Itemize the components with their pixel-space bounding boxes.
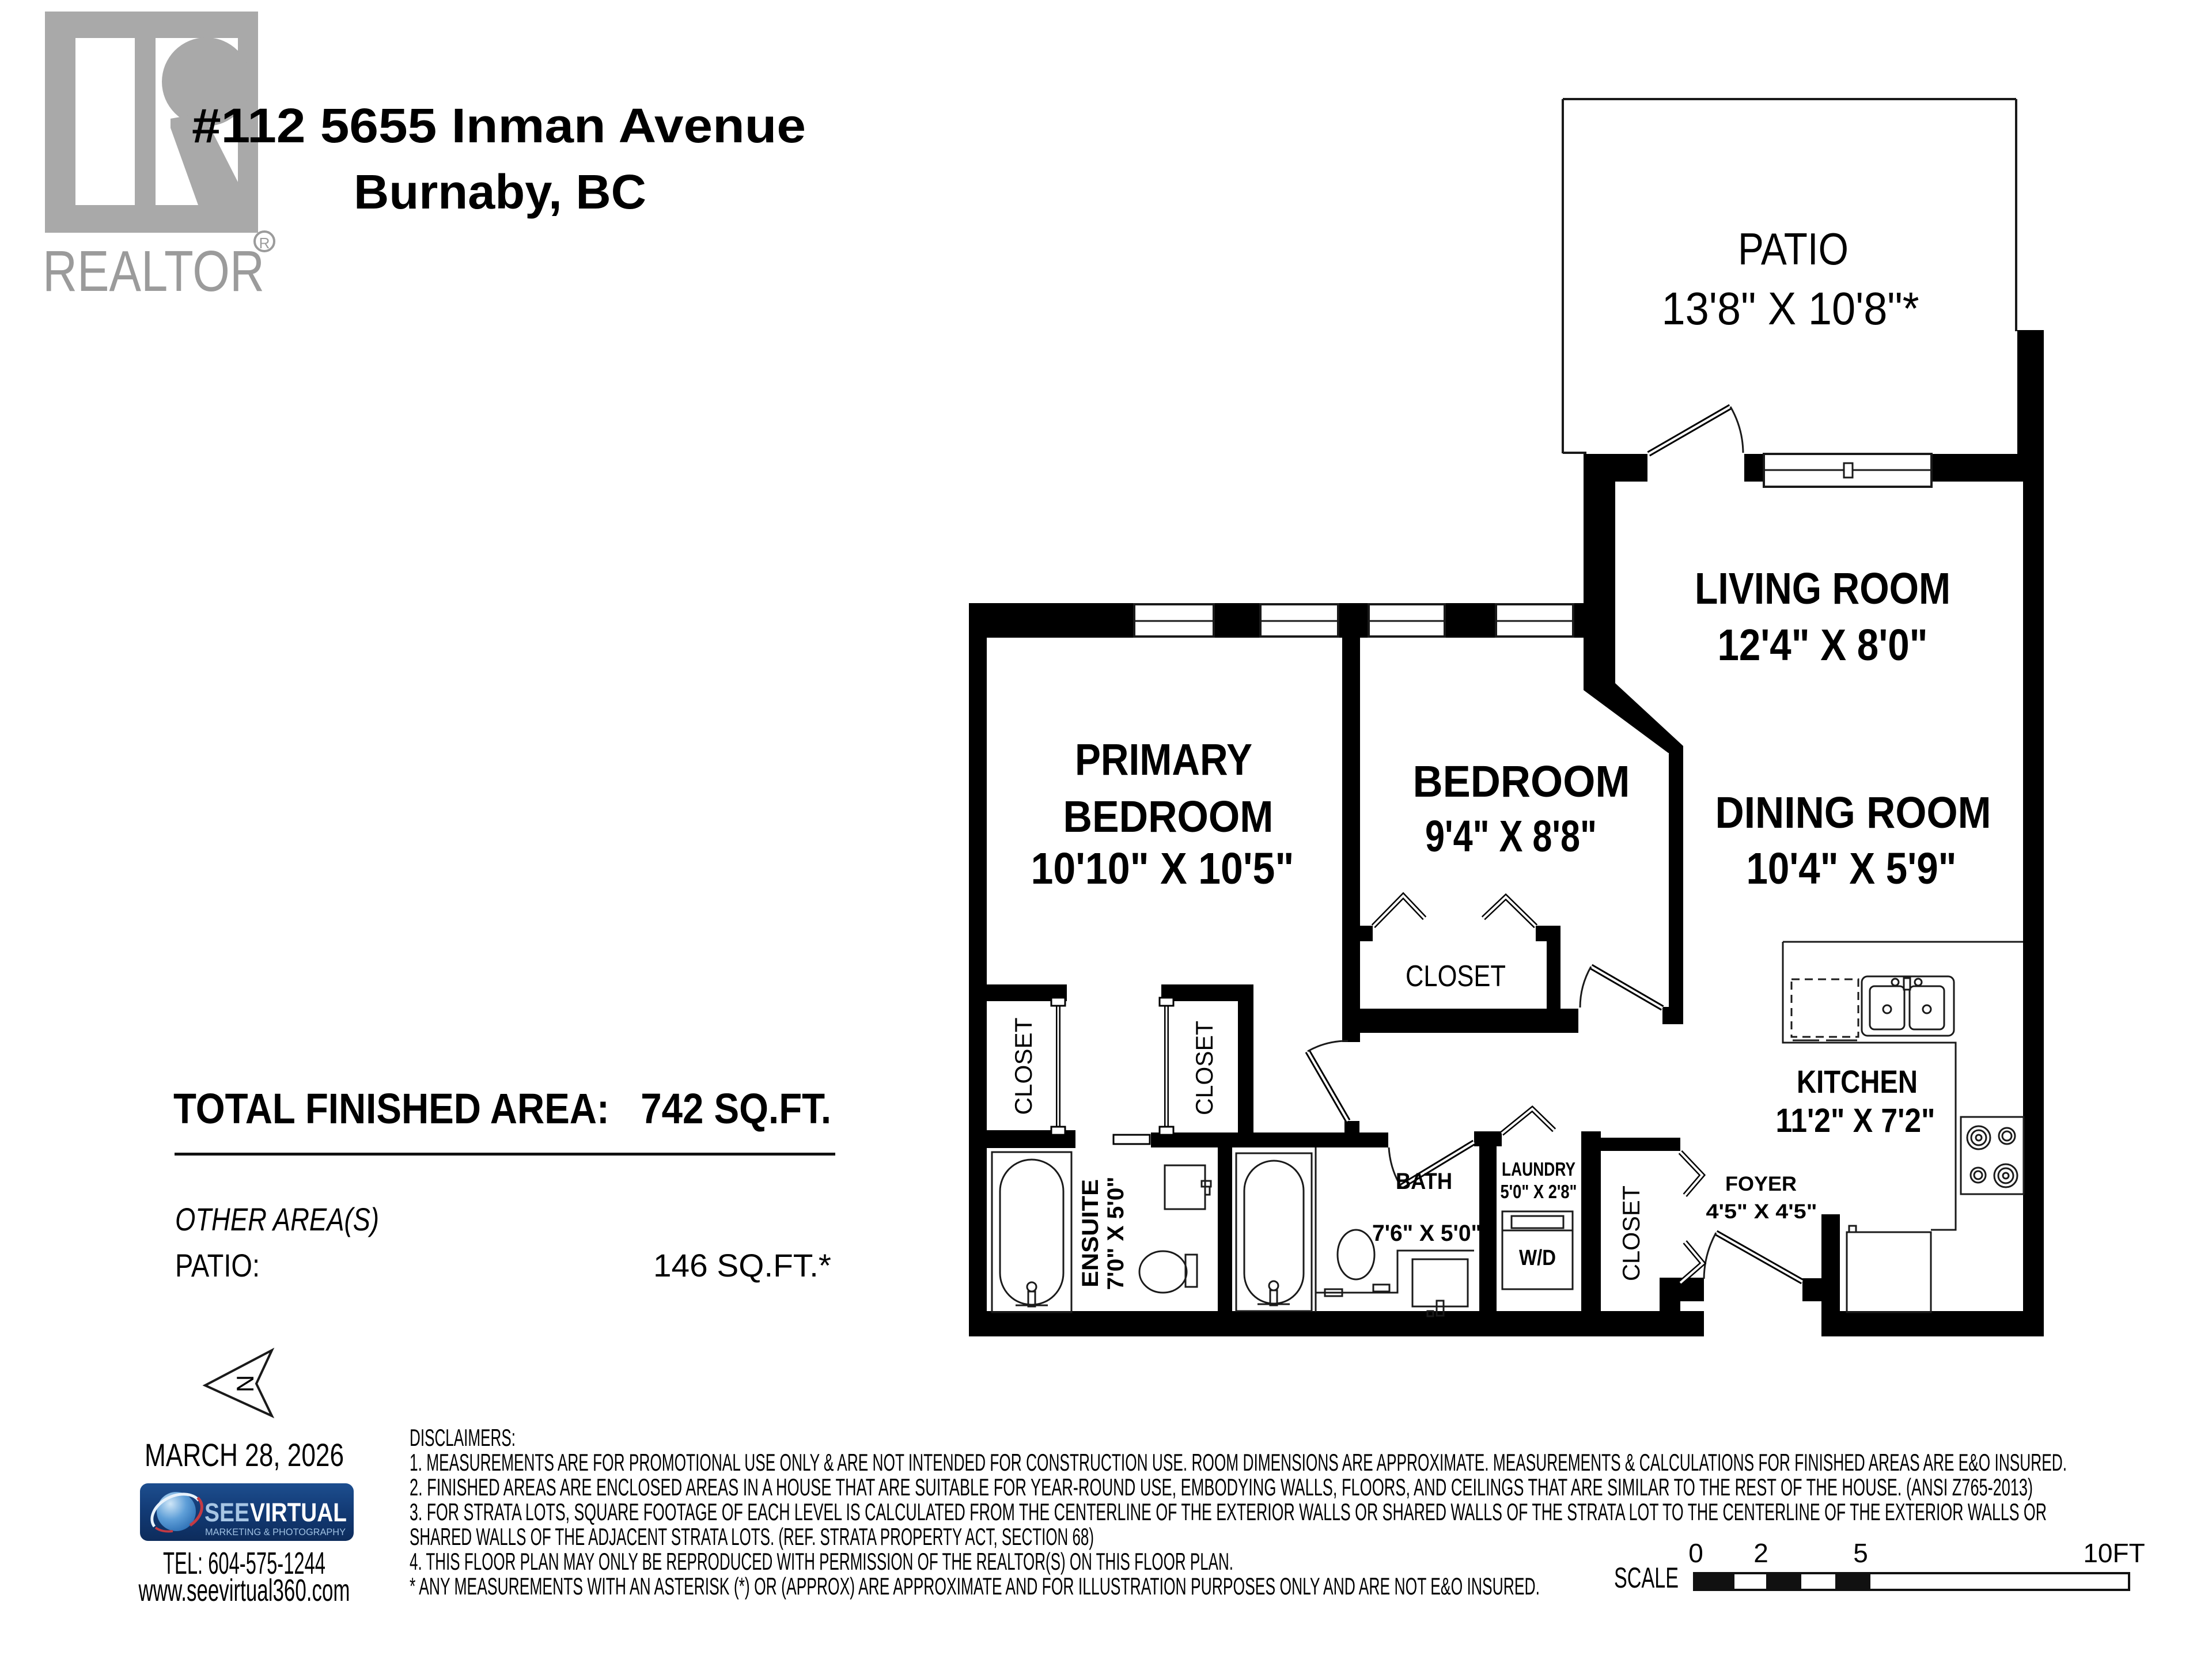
- svg-text:#112 5655 Inman Avenue: #112 5655 Inman Avenue: [192, 99, 806, 153]
- svg-text:11'2" X 7'2": 11'2" X 7'2": [1776, 1102, 1935, 1139]
- svg-text:Burnaby, BC: Burnaby, BC: [354, 165, 646, 219]
- svg-text:BEDROOM: BEDROOM: [1413, 757, 1630, 806]
- svg-text:SCALE: SCALE: [1614, 1562, 1679, 1594]
- svg-text:1. MEASUREMENTS ARE FOR PROMOT: 1. MEASUREMENTS ARE FOR PROMOTIONAL USE …: [410, 1449, 2067, 1476]
- svg-text:2. FINISHED AREAS ARE ENCLOSED: 2. FINISHED AREAS ARE ENCLOSED AREAS IN …: [410, 1474, 2033, 1501]
- svg-text:FOYER: FOYER: [1725, 1173, 1797, 1195]
- svg-text:ENSUITE: ENSUITE: [1078, 1179, 1103, 1287]
- svg-text:OTHER AREA(S): OTHER AREA(S): [175, 1201, 379, 1237]
- svg-text:5: 5: [1853, 1538, 1868, 1568]
- svg-text:BATH: BATH: [1396, 1169, 1452, 1194]
- svg-text:CLOSET: CLOSET: [1406, 960, 1506, 993]
- svg-text:13'8" X 10'8"*: 13'8" X 10'8"*: [1662, 283, 1919, 334]
- svg-text:TOTAL FINISHED AREA: 742 SQ.: TOTAL FINISHED AREA: 742 SQ.FT.: [173, 1085, 831, 1132]
- svg-text:DISCLAIMERS:: DISCLAIMERS:: [410, 1424, 516, 1451]
- svg-text:VIRTUAL: VIRTUAL: [250, 1498, 347, 1527]
- svg-text:MARCH 28, 2026: MARCH 28, 2026: [145, 1437, 344, 1473]
- svg-text:* ANY MEASUREMENTS WITH AN AST: * ANY MEASUREMENTS WITH AN ASTERISK (*) …: [410, 1573, 1540, 1600]
- svg-text:3. FOR STRATA LOTS, SQUARE FOO: 3. FOR STRATA LOTS, SQUARE FOOTAGE OF EA…: [410, 1498, 2047, 1525]
- svg-text:7'0" X 5'0": 7'0" X 5'0": [1103, 1177, 1128, 1290]
- svg-text:CLOSET: CLOSET: [1618, 1185, 1645, 1281]
- svg-text:PATIO:: PATIO:: [175, 1247, 260, 1283]
- svg-text:MARKETING & PHOTOGRAPHY: MARKETING & PHOTOGRAPHY: [205, 1527, 346, 1537]
- svg-text:PATIO: PATIO: [1738, 224, 1849, 274]
- svg-text:SHARED WALLS OF THE ADJACENT S: SHARED WALLS OF THE ADJACENT STRATA LOTS…: [410, 1523, 1094, 1550]
- svg-text:2: 2: [1753, 1538, 1768, 1568]
- svg-text:LIVING ROOM: LIVING ROOM: [1695, 564, 1950, 613]
- svg-text:R: R: [259, 234, 270, 252]
- svg-text:LAUNDRY: LAUNDRY: [1502, 1158, 1575, 1180]
- svg-text:4. THIS FLOOR PLAN MAY ONLY BE: 4. THIS FLOOR PLAN MAY ONLY BE REPRODUCE…: [410, 1548, 1233, 1575]
- svg-text:7'6" X 5'0": 7'6" X 5'0": [1372, 1221, 1482, 1246]
- svg-text:REALTOR: REALTOR: [43, 239, 264, 304]
- svg-text:12'4" X 8'0": 12'4" X 8'0": [1718, 620, 1928, 670]
- svg-text:W/D: W/D: [1519, 1246, 1556, 1270]
- svg-text:SEE: SEE: [204, 1498, 249, 1527]
- svg-text:N: N: [232, 1375, 259, 1392]
- svg-text:10'4" X 5'9": 10'4" X 5'9": [1747, 844, 1957, 893]
- svg-text:9'4" X 8'8": 9'4" X 8'8": [1425, 812, 1597, 861]
- svg-text:KITCHEN: KITCHEN: [1797, 1063, 1918, 1100]
- svg-text:0: 0: [1688, 1538, 1703, 1568]
- svg-text:BEDROOM: BEDROOM: [1063, 792, 1274, 842]
- svg-text:www.seevirtual360.com: www.seevirtual360.com: [138, 1573, 350, 1608]
- svg-text:PRIMARY: PRIMARY: [1075, 735, 1252, 785]
- svg-text:146 SQ.FT.*: 146 SQ.FT.*: [653, 1247, 831, 1283]
- svg-text:10'10" X 10'5": 10'10" X 10'5": [1031, 844, 1294, 893]
- svg-text:10FT: 10FT: [2083, 1538, 2145, 1568]
- svg-text:5'0" X 2'8": 5'0" X 2'8": [1501, 1181, 1577, 1202]
- svg-text:DINING ROOM: DINING ROOM: [1715, 788, 1991, 838]
- svg-text:4'5" X 4'5": 4'5" X 4'5": [1706, 1200, 1817, 1223]
- svg-text:CLOSET: CLOSET: [1010, 1018, 1037, 1115]
- svg-text:CLOSET: CLOSET: [1191, 1021, 1218, 1115]
